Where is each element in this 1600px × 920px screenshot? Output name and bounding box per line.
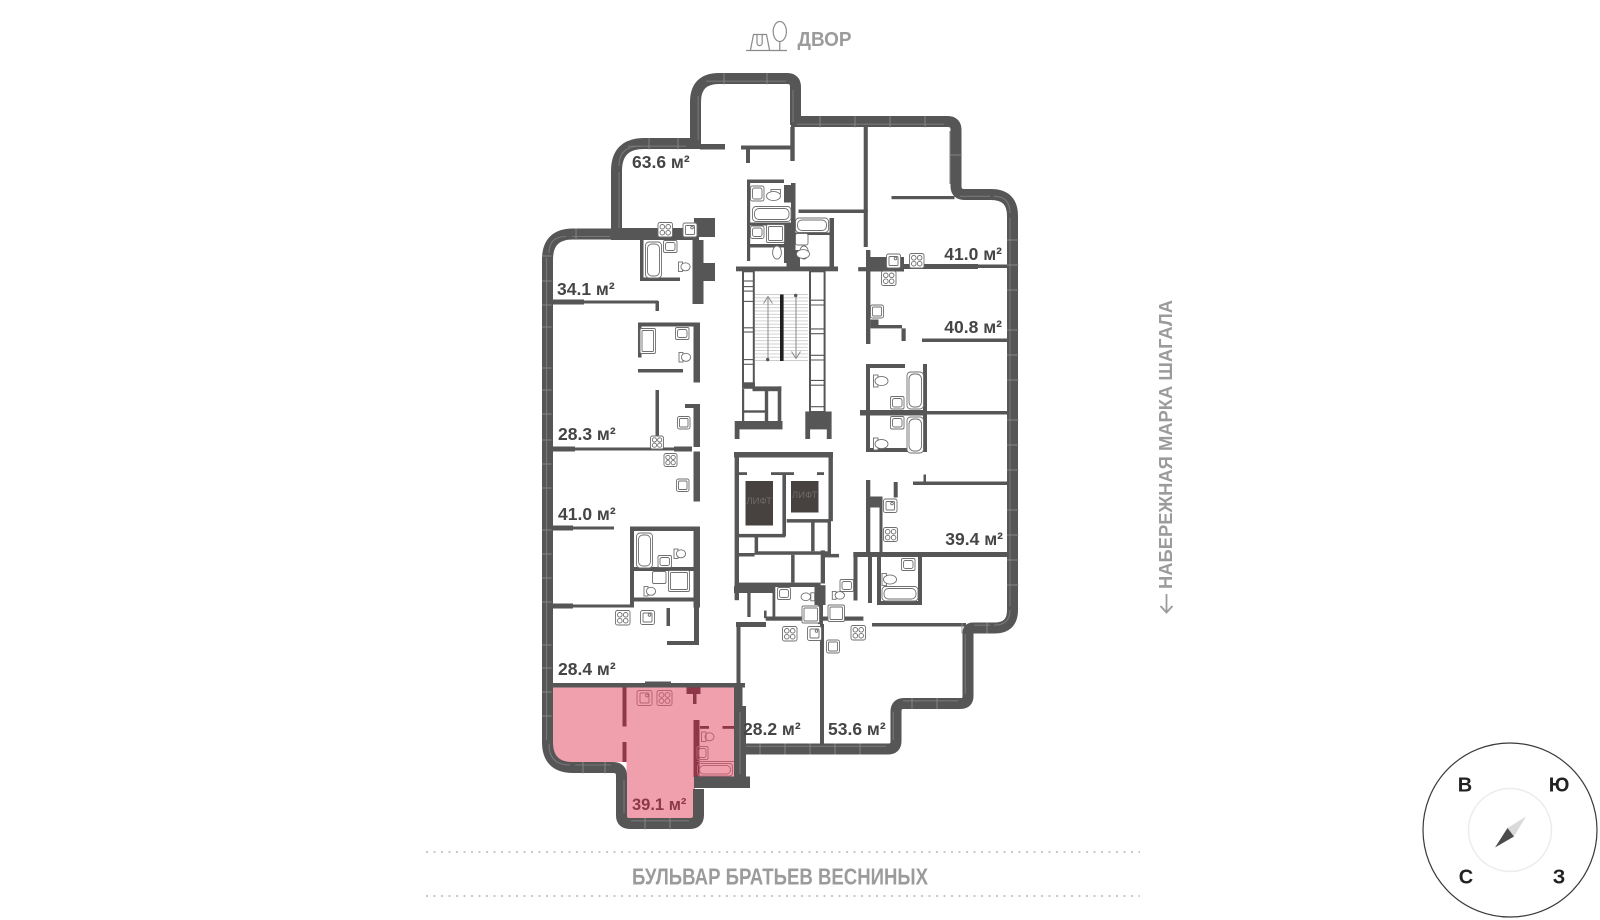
svg-text:28.2 м²: 28.2 м² — [743, 719, 801, 739]
svg-text:Ю: Ю — [1549, 775, 1570, 797]
svg-text:63.6 м²: 63.6 м² — [632, 152, 690, 172]
svg-text:НАБЕРЕЖНАЯ МАРКА ШАГАЛА: НАБЕРЕЖНАЯ МАРКА ШАГАЛА — [1155, 300, 1176, 589]
svg-text:39.1 м²: 39.1 м² — [632, 796, 687, 814]
svg-text:ДВОР: ДВОР — [798, 29, 852, 51]
svg-text:53.6 м²: 53.6 м² — [828, 719, 886, 739]
svg-text:ЛИФТ: ЛИФТ — [792, 490, 818, 501]
svg-text:ЛИФТ: ЛИФТ — [746, 496, 772, 507]
svg-text:34.1 м²: 34.1 м² — [557, 279, 615, 299]
svg-text:БУЛЬВАР БРАТЬЕВ ВЕСНИНЫХ: БУЛЬВАР БРАТЬЕВ ВЕСНИНЫХ — [632, 864, 929, 890]
svg-text:39.4 м²: 39.4 м² — [945, 529, 1003, 549]
svg-text:41.0 м²: 41.0 м² — [944, 244, 1002, 264]
svg-text:40.8 м²: 40.8 м² — [944, 317, 1002, 337]
svg-text:В: В — [1458, 775, 1472, 797]
svg-text:С: С — [1459, 867, 1473, 889]
svg-text:28.4 м²: 28.4 м² — [558, 659, 616, 679]
svg-text:41.0 м²: 41.0 м² — [558, 504, 616, 524]
svg-text:З: З — [1553, 867, 1566, 889]
svg-text:28.3 м²: 28.3 м² — [558, 424, 616, 444]
